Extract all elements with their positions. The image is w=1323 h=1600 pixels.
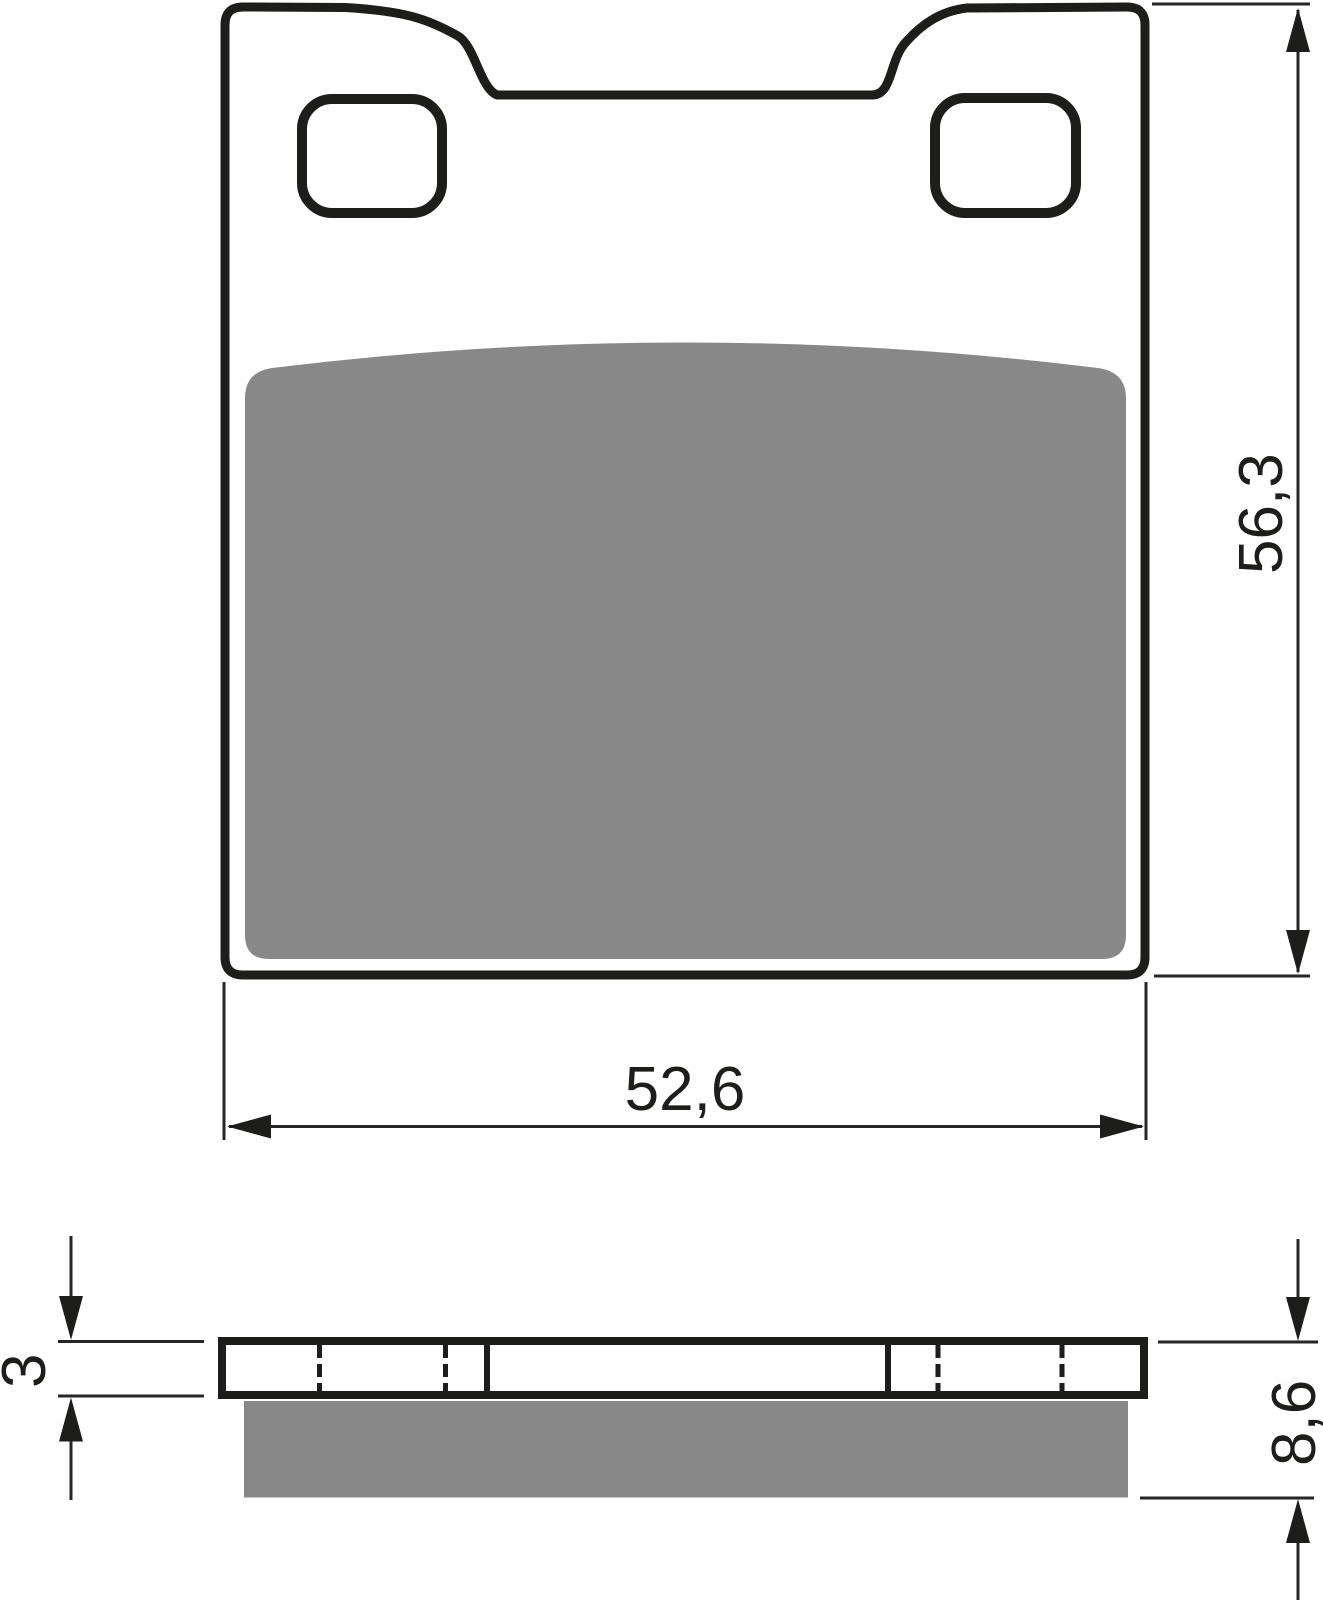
svg-text:3: 3 xyxy=(0,1354,59,1388)
svg-text:8,6: 8,6 xyxy=(1260,1380,1323,1466)
svg-text:52,6: 52,6 xyxy=(625,1055,746,1124)
svg-text:56,3: 56,3 xyxy=(1227,453,1296,574)
